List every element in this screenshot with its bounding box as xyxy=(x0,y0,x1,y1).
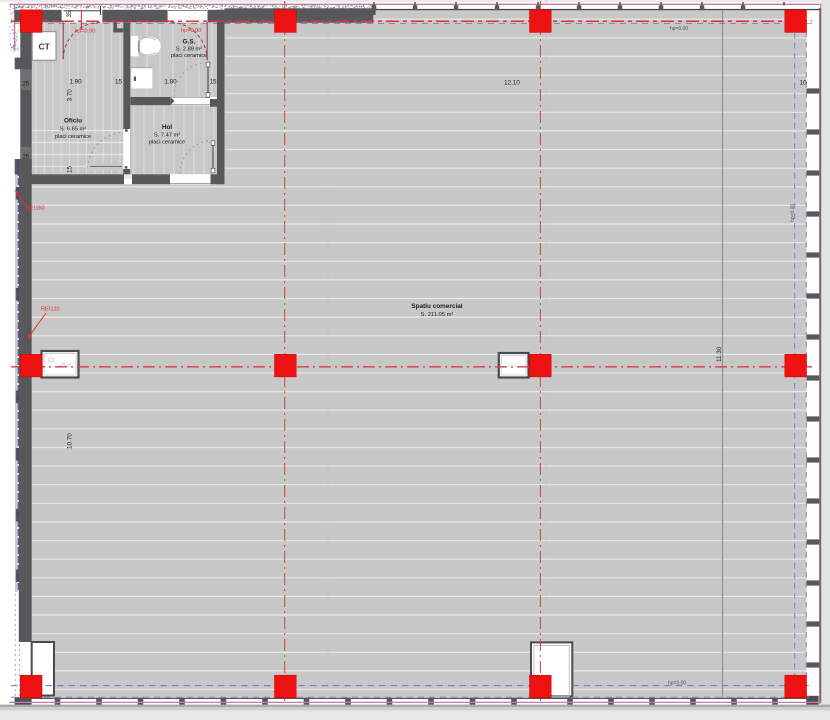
svg-text:15: 15 xyxy=(115,79,123,86)
svg-text:25: 25 xyxy=(22,82,29,88)
svg-text:1.90: 1.90 xyxy=(69,79,82,86)
svg-text:G.S.: G.S. xyxy=(183,39,196,46)
svg-text:1.80: 1.80 xyxy=(164,79,177,86)
svg-text:10.70: 10.70 xyxy=(67,433,74,449)
svg-text:10: 10 xyxy=(799,80,807,87)
svg-text:hp=0.00: hp=0.00 xyxy=(668,681,686,687)
svg-text:S. 2.89 m²: S. 2.89 m² xyxy=(176,47,202,53)
svg-text:hp=0.00: hp=0.00 xyxy=(670,26,688,32)
svg-text:Hol: Hol xyxy=(162,124,173,131)
svg-text:placi ceramice: placi ceramice xyxy=(149,140,185,146)
svg-text:S. 211.05 m²: S. 211.05 m² xyxy=(421,312,454,318)
svg-text:hp=0.00: hp=0.00 xyxy=(790,204,796,222)
svg-text:Oficiu: Oficiu xyxy=(64,118,82,125)
svg-text:12.10: 12.10 xyxy=(504,80,520,87)
svg-text:35: 35 xyxy=(67,10,73,17)
svg-text:placi ceramice: placi ceramice xyxy=(171,53,207,59)
svg-text:hp=0.00: hp=0.00 xyxy=(181,28,201,34)
svg-text:Spatiu comercial: Spatiu comercial xyxy=(411,303,462,310)
svg-text:25: 25 xyxy=(22,155,29,161)
svg-text:hp=0.90: hp=0.90 xyxy=(75,29,95,35)
svg-text:15: 15 xyxy=(209,79,217,86)
svg-text:S. 7.47 m²: S. 7.47 m² xyxy=(154,132,180,138)
svg-text:REI120: REI120 xyxy=(41,307,60,313)
svg-text:CT: CT xyxy=(38,42,50,52)
svg-text:11.30: 11.30 xyxy=(716,346,723,362)
svg-text:3.70: 3.70 xyxy=(66,89,73,102)
svg-text:S. 6.65 m²: S. 6.65 m² xyxy=(60,127,86,133)
svg-text:15: 15 xyxy=(66,165,73,173)
svg-text:placi ceramice: placi ceramice xyxy=(55,134,91,140)
